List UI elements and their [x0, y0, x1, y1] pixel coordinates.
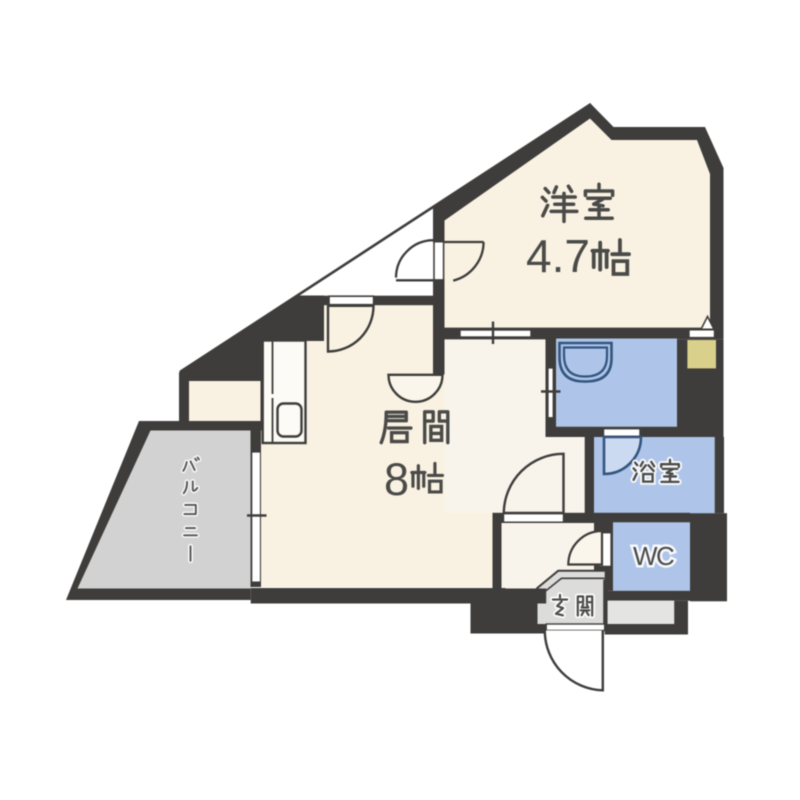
- svg-text:8: 8: [384, 454, 409, 505]
- svg-text:WC: WC: [633, 541, 674, 571]
- svg-text:4.7: 4.7: [526, 230, 590, 282]
